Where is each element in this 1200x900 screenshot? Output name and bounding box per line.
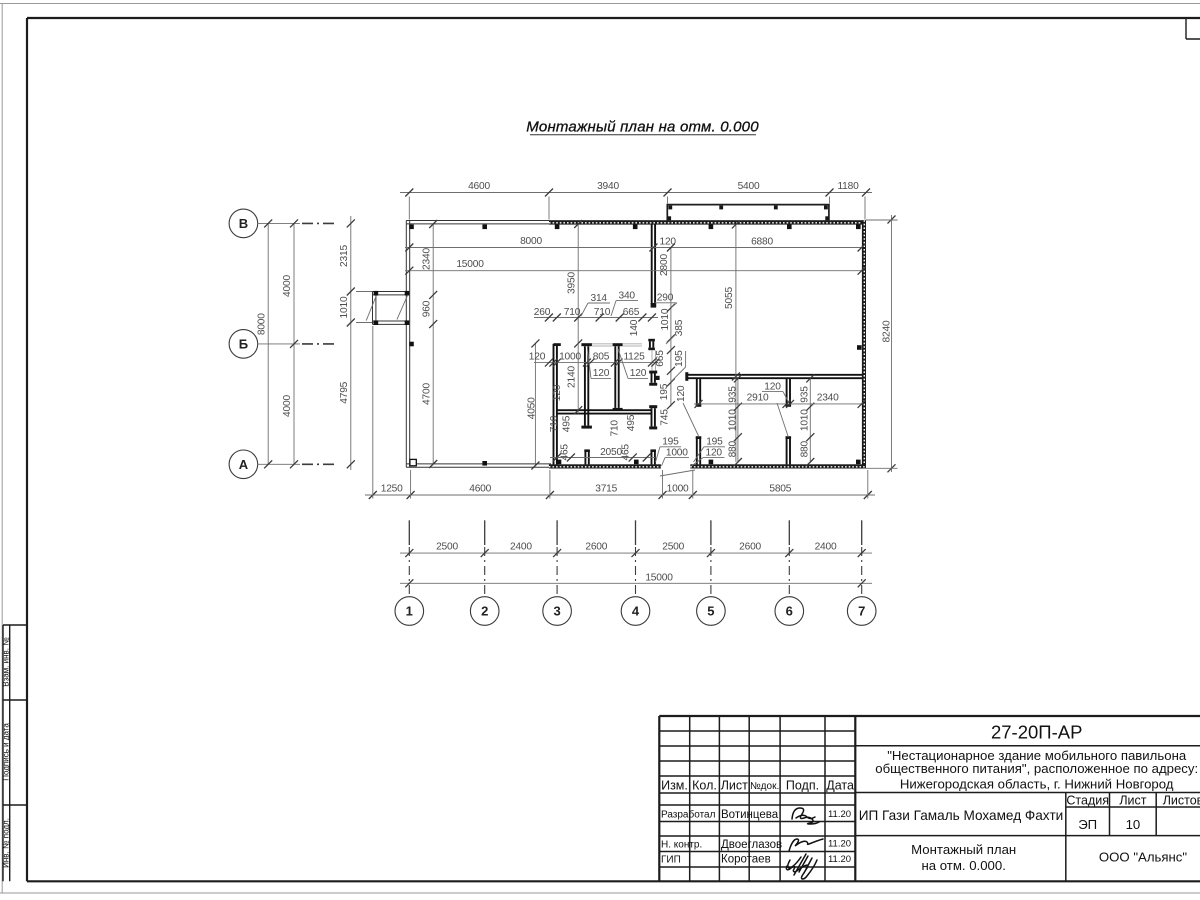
svg-text:5805: 5805 [769,484,791,495]
svg-text:195: 195 [706,437,723,448]
svg-text:314: 314 [590,293,607,304]
svg-text:1250: 1250 [381,484,403,495]
svg-text:Дата: Дата [826,778,854,792]
svg-text:1010: 1010 [660,308,671,330]
svg-text:Разработал: Разработал [661,808,716,820]
svg-text:ИП Гази Гамаль Мохамед Фахти: ИП Гази Гамаль Мохамед Фахти [859,808,1064,823]
svg-text:495: 495 [562,415,573,432]
svg-text:Вотинцева: Вотинцева [721,809,779,821]
svg-text:260: 260 [534,307,551,318]
svg-text:665: 665 [655,350,666,367]
svg-text:745: 745 [659,409,670,426]
svg-text:665: 665 [623,307,640,318]
svg-text:6: 6 [786,604,793,619]
svg-text:4050: 4050 [526,397,537,419]
svg-text:120: 120 [705,447,722,458]
svg-text:195: 195 [674,350,685,367]
svg-text:805: 805 [593,352,610,363]
svg-text:2910: 2910 [747,392,769,403]
svg-text:3: 3 [553,604,560,619]
svg-text:1: 1 [406,604,413,619]
svg-text:5400: 5400 [738,181,760,192]
svg-text:710: 710 [564,307,581,318]
svg-text:935: 935 [800,386,811,403]
svg-text:195: 195 [662,437,679,448]
svg-text:120: 120 [659,237,676,248]
svg-text:2: 2 [481,604,488,619]
svg-text:710: 710 [609,420,620,437]
svg-text:140: 140 [629,319,640,336]
svg-text:Н. контр.: Н. контр. [661,839,702,850]
svg-text:общественного питания", распол: общественного питания", расположенное по… [875,761,1198,776]
svg-text:Монтажный план на отм. 0.000: Монтажный план на отм. 0.000 [526,119,759,136]
svg-text:2315: 2315 [339,245,350,267]
svg-text:465: 465 [621,444,632,461]
svg-text:15000: 15000 [456,259,484,270]
svg-text:ГИП: ГИП [661,854,681,865]
svg-text:Подп.: Подп. [786,778,819,792]
svg-text:5: 5 [707,604,714,619]
svg-text:495: 495 [626,414,637,431]
svg-text:1000: 1000 [559,352,581,363]
svg-text:880: 880 [727,440,738,457]
svg-text:8000: 8000 [256,313,267,335]
svg-text:5055: 5055 [724,287,735,309]
svg-text:Лист: Лист [1119,793,1146,807]
svg-text:7: 7 [858,604,865,619]
svg-text:120: 120 [593,368,610,379]
svg-text:1000: 1000 [667,484,689,495]
svg-text:120: 120 [552,384,563,401]
svg-text:3940: 3940 [597,181,619,192]
svg-text:А: А [239,457,249,472]
svg-text:2340: 2340 [817,392,839,403]
svg-text:Подпись и дата: Подпись и дата [1,723,10,781]
svg-text:385: 385 [674,319,685,336]
svg-text:11.20: 11.20 [828,839,851,850]
svg-text:935: 935 [727,386,738,403]
svg-text:1010: 1010 [727,409,738,431]
svg-text:120: 120 [676,385,687,402]
svg-text:6880: 6880 [751,237,773,248]
svg-text:Инв. № подл.: Инв. № подл. [1,818,10,868]
svg-text:960: 960 [421,300,432,317]
svg-text:2050: 2050 [600,447,622,458]
svg-text:4600: 4600 [468,181,490,192]
svg-text:120: 120 [529,352,546,363]
svg-text:№док.: №док. [750,781,779,792]
svg-text:1125: 1125 [623,352,645,363]
svg-text:8000: 8000 [520,236,542,247]
svg-text:2600: 2600 [739,542,761,553]
svg-text:710: 710 [594,307,611,318]
svg-text:Монтажный план: Монтажный план [911,842,1016,857]
svg-text:195: 195 [659,383,670,400]
svg-text:2600: 2600 [585,542,607,553]
svg-text:465: 465 [560,444,571,461]
svg-text:1010: 1010 [339,296,350,318]
svg-text:11.20: 11.20 [828,809,851,820]
svg-text:4700: 4700 [421,383,432,405]
svg-text:4: 4 [632,604,640,619]
svg-text:1010: 1010 [800,409,811,431]
svg-text:880: 880 [800,440,811,457]
svg-text:710: 710 [549,415,560,432]
svg-text:Стадия: Стадия [1066,793,1109,807]
svg-text:1180: 1180 [837,181,859,192]
svg-text:120: 120 [764,381,781,392]
svg-text:1000: 1000 [666,447,688,458]
svg-text:4000: 4000 [282,395,293,417]
svg-text:4795: 4795 [339,381,350,403]
svg-text:3715: 3715 [595,484,617,495]
svg-text:8240: 8240 [882,320,893,342]
svg-text:на отм. 0.000.: на отм. 0.000. [921,858,1005,873]
svg-text:Изм.: Изм. [661,778,688,792]
svg-text:В: В [239,216,248,231]
svg-text:Лист: Лист [721,778,748,792]
svg-text:2340: 2340 [421,248,432,270]
svg-text:10: 10 [1126,817,1141,832]
svg-text:4000: 4000 [282,275,293,297]
svg-text:3950: 3950 [566,272,577,294]
svg-text:2400: 2400 [510,542,532,553]
svg-text:Взам. инв. №: Взам. инв. № [1,637,10,687]
svg-text:11.20: 11.20 [828,854,851,865]
svg-text:2140: 2140 [566,366,577,388]
svg-text:Листов: Листов [1163,793,1200,807]
svg-text:ЭП: ЭП [1078,817,1097,832]
svg-text:290: 290 [657,293,674,304]
svg-text:Нижегородская область, г. Нижн: Нижегородская область, г. Нижний Новгоро… [900,777,1174,792]
svg-text:2400: 2400 [815,542,837,553]
svg-text:120: 120 [630,368,647,379]
svg-text:15000: 15000 [645,572,673,583]
svg-text:Двоеглазов: Двоеглазов [721,839,782,851]
svg-text:4600: 4600 [469,484,491,495]
svg-text:2500: 2500 [662,542,684,553]
svg-text:Б: Б [239,337,248,352]
svg-text:2500: 2500 [436,542,458,553]
svg-text:Кол.: Кол. [692,778,717,792]
svg-text:27-20П-АР: 27-20П-АР [991,722,1082,743]
svg-text:ООО "Альянс": ООО "Альянс" [1099,849,1187,864]
svg-text:340: 340 [618,291,635,302]
svg-text:2800: 2800 [659,254,670,276]
svg-text:Коротаев: Коротаев [721,854,771,866]
